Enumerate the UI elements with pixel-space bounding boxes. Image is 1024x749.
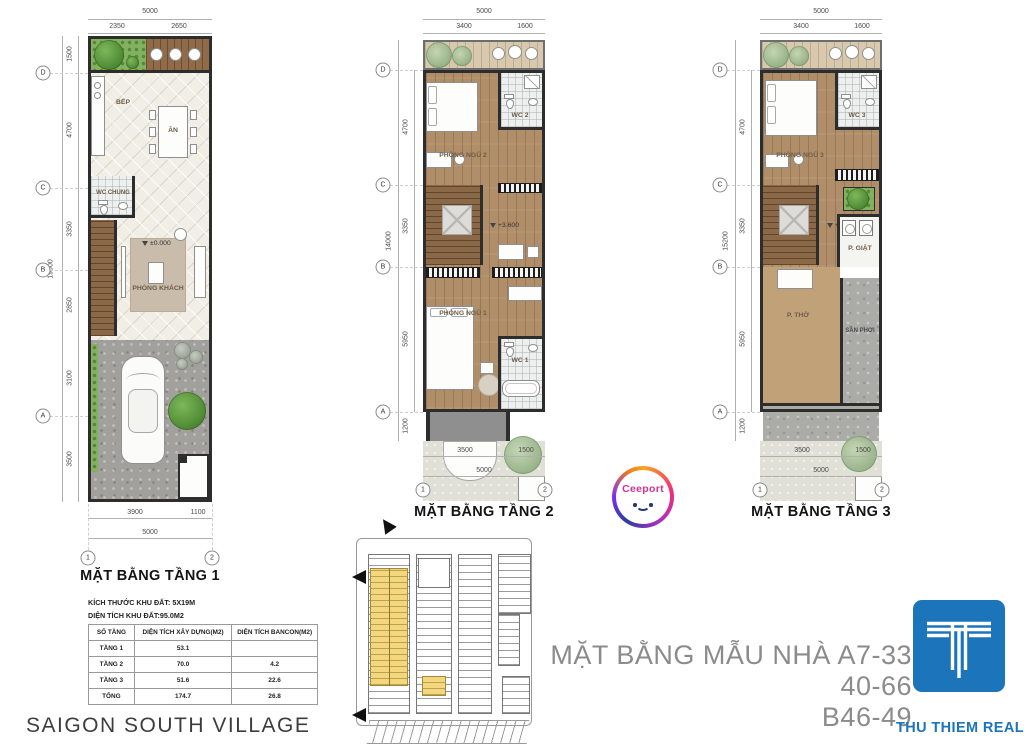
dim-label: 5000 bbox=[476, 8, 492, 15]
grid-bubble: B bbox=[36, 263, 51, 278]
land-area-text: DIỆN TÍCH KHU ĐẤT:95.0M2 bbox=[88, 611, 320, 620]
grid-bubble: 1 bbox=[753, 483, 768, 498]
floor3-title: MẶT BẰNG TẦNG 3 bbox=[751, 504, 891, 520]
planter-icon bbox=[508, 45, 522, 59]
dim-label: 3500 bbox=[794, 447, 810, 454]
dimension-line bbox=[735, 40, 736, 441]
round-rug bbox=[478, 374, 500, 396]
grid-line bbox=[390, 412, 423, 413]
grid-bubble: A bbox=[36, 409, 51, 424]
highlighted-lot bbox=[422, 676, 446, 696]
car-icon bbox=[121, 356, 165, 464]
deck-table-icon bbox=[169, 48, 182, 61]
dimension-line bbox=[414, 70, 415, 412]
dim-label: 5000 bbox=[813, 467, 829, 474]
railing bbox=[492, 267, 542, 278]
table-row: TỔNG 174.7 26.8 bbox=[89, 689, 318, 705]
t-logo-icon bbox=[913, 600, 1005, 692]
grid-line bbox=[727, 412, 760, 413]
grid-line bbox=[50, 73, 88, 74]
toilet-icon bbox=[98, 200, 108, 205]
skylight bbox=[442, 205, 472, 235]
deck-chair-icon bbox=[150, 48, 163, 61]
grid-bubble: 2 bbox=[875, 483, 890, 498]
level-marker-icon bbox=[490, 223, 496, 228]
dim-label: 1200 bbox=[403, 418, 410, 434]
wall bbox=[426, 412, 430, 441]
ceeport-label: Ceeport bbox=[616, 483, 670, 495]
dim-label: 1600 bbox=[854, 23, 870, 30]
dim-label: 15200 bbox=[723, 231, 730, 250]
tv-console-icon bbox=[121, 246, 126, 298]
dim-label: 3900 bbox=[127, 509, 143, 516]
site-block bbox=[458, 554, 492, 714]
project-name: SAIGON SOUTH VILLAGE bbox=[26, 714, 310, 738]
table-header: SỐ TẦNG bbox=[89, 625, 135, 641]
entrance-arrow-icon bbox=[352, 708, 366, 722]
shower-icon bbox=[861, 75, 877, 89]
dim-label: 2650 bbox=[171, 23, 187, 30]
dim-label: 3350 bbox=[403, 218, 410, 234]
dim-label: 1500 bbox=[67, 46, 74, 62]
table-row: TẦNG 3 51.6 22.6 bbox=[89, 673, 318, 689]
table-cell: 174.7 bbox=[134, 689, 232, 705]
grid-bubble: D bbox=[36, 66, 51, 81]
grid-bubble: 1 bbox=[81, 551, 96, 566]
grid-line bbox=[50, 188, 88, 189]
grid-bubble: B bbox=[713, 260, 728, 275]
dim-label: 5950 bbox=[740, 331, 747, 347]
dim-label: 3400 bbox=[456, 23, 472, 30]
room-label-worship: P. THỜ bbox=[787, 313, 809, 320]
floor1-plan: 5000 2350 2650 1500 4700 3350 2850 3100 … bbox=[18, 6, 268, 606]
dim-label: 3500 bbox=[457, 447, 473, 454]
land-size-text: KÍCH THƯỚC KHU ĐẤT: 5X19M bbox=[88, 598, 320, 607]
tree-icon bbox=[504, 436, 542, 474]
dim-label: 3350 bbox=[67, 221, 74, 237]
table-cell: 51.6 bbox=[134, 673, 232, 689]
dimension-line bbox=[423, 33, 545, 34]
dimension-line bbox=[78, 36, 79, 502]
table-cell: TẦNG 2 bbox=[89, 657, 135, 673]
table-cell: 70.0 bbox=[134, 657, 232, 673]
room-label-drying-yard: SÂN PHƠI bbox=[845, 328, 874, 334]
dim-label: 3500 bbox=[67, 451, 74, 467]
dimension-line bbox=[751, 70, 752, 412]
tree-icon bbox=[452, 46, 472, 66]
grid-bubble: 1 bbox=[416, 483, 431, 498]
brand-name: THU THIEM REAL bbox=[895, 720, 1024, 736]
shrub-icon bbox=[176, 358, 188, 370]
desk-icon bbox=[498, 244, 524, 260]
washer-icon bbox=[859, 220, 873, 236]
ceeport-watermark: Ceeport bbox=[612, 466, 674, 528]
kitchen-sink-icon bbox=[94, 82, 101, 89]
site-plan bbox=[352, 518, 537, 748]
dim-label: 1500 bbox=[518, 447, 534, 454]
level-marker: +3.600 bbox=[490, 222, 519, 229]
dim-label: 3100 bbox=[67, 370, 74, 386]
ceeport-face-icon: Ceeport bbox=[616, 470, 670, 524]
tree-icon bbox=[426, 42, 452, 68]
planter-icon bbox=[862, 47, 875, 60]
car-windshield bbox=[126, 373, 160, 387]
dim-label: 1500 bbox=[855, 447, 871, 454]
stove-icon bbox=[94, 92, 101, 99]
grid-line bbox=[88, 504, 89, 550]
table-header: DIỆN TÍCH BANCON(M2) bbox=[232, 625, 318, 641]
grid-bubble: D bbox=[713, 63, 728, 78]
dimension-line bbox=[423, 456, 545, 457]
ceeport-smile-icon bbox=[636, 500, 650, 511]
dim-label: 4700 bbox=[740, 119, 747, 135]
tree-icon bbox=[763, 42, 789, 68]
sink-icon bbox=[528, 344, 538, 352]
sink-icon bbox=[865, 98, 875, 106]
dim-label: 4700 bbox=[403, 119, 410, 135]
shrub-icon bbox=[126, 56, 139, 69]
sink-icon bbox=[118, 202, 128, 210]
dim-label: 5000 bbox=[813, 8, 829, 15]
dim-label: 3400 bbox=[793, 23, 809, 30]
room-label-living: PHÒNG KHÁCH bbox=[132, 286, 183, 293]
dim-label: 1600 bbox=[517, 23, 533, 30]
room-label-wc3: WC 3 bbox=[849, 113, 866, 120]
armchair-icon bbox=[174, 228, 187, 241]
grid-bubble: C bbox=[713, 178, 728, 193]
shrub-icon bbox=[189, 350, 203, 364]
site-block bbox=[498, 614, 520, 666]
thu-thiem-logo bbox=[913, 600, 1005, 692]
room-label-kitchen: BẾP bbox=[116, 100, 130, 107]
dim-label: 1200 bbox=[740, 418, 747, 434]
land-info: KÍCH THƯỚC KHU ĐẤT: 5X19M DIỆN TÍCH KHU … bbox=[88, 598, 320, 705]
room-label-bedroom3: PHÒNG NGỦ 3 bbox=[776, 153, 824, 160]
dim-label: 5000 bbox=[142, 529, 158, 536]
grid-line bbox=[50, 416, 88, 417]
dim-label: 2850 bbox=[67, 297, 74, 313]
floorplan-sheet: 5000 2350 2650 1500 4700 3350 2850 3100 … bbox=[0, 0, 1024, 749]
grid-line bbox=[390, 70, 423, 71]
dimension-line bbox=[760, 33, 882, 34]
dim-label: 2350 bbox=[109, 23, 125, 30]
grid-line bbox=[727, 185, 760, 186]
table-cell: 53.1 bbox=[134, 641, 232, 657]
dining-chair-icon bbox=[149, 127, 156, 137]
altar-table-icon bbox=[777, 269, 813, 289]
grid-bubble: A bbox=[376, 405, 391, 420]
dim-label: 5000 bbox=[476, 467, 492, 474]
caption-line2: B46-49 bbox=[537, 702, 912, 733]
bathtub-icon bbox=[502, 380, 540, 397]
tree-icon bbox=[168, 392, 206, 430]
tree-icon bbox=[789, 46, 809, 66]
grid-bubble: 2 bbox=[205, 551, 220, 566]
room-label-bedroom1: PHÒNG NGỦ 1 bbox=[439, 311, 487, 318]
pillow-icon bbox=[767, 106, 776, 124]
room-label-wc: WC CHUNG bbox=[96, 190, 130, 196]
tree-icon bbox=[841, 436, 877, 472]
staircase bbox=[91, 220, 117, 336]
railing bbox=[498, 183, 542, 193]
grid-line bbox=[50, 270, 88, 271]
tree-icon bbox=[94, 40, 124, 70]
table-row: TẦNG 1 53.1 bbox=[89, 641, 318, 657]
grid-bubble: C bbox=[376, 178, 391, 193]
planter-icon bbox=[525, 47, 538, 60]
floor3-plan: 5000 3400 1600 4700 3350 5950 1200 15200… bbox=[693, 6, 933, 606]
entrance-arrow-icon bbox=[352, 570, 366, 584]
dimension-line bbox=[88, 33, 212, 34]
grid-line bbox=[390, 185, 423, 186]
north-arrow-icon bbox=[377, 515, 396, 534]
chair-icon bbox=[480, 362, 494, 374]
dimension-line bbox=[423, 476, 545, 477]
planter-icon bbox=[845, 45, 859, 59]
dimension-line bbox=[760, 19, 882, 20]
dimension-line bbox=[423, 19, 545, 20]
level-value: +3.600 bbox=[498, 222, 519, 229]
dim-label: 5950 bbox=[403, 331, 410, 347]
grid-line bbox=[727, 267, 760, 268]
floor1-title: MẶT BẰNG TẦNG 1 bbox=[80, 568, 220, 584]
railing bbox=[426, 267, 480, 278]
dim-label: 1100 bbox=[190, 509, 205, 516]
area-table: SỐ TẦNG DIỆN TÍCH XÂY DỰNG(M2) DIỆN TÍCH… bbox=[88, 624, 318, 705]
site-block bbox=[502, 676, 530, 714]
lot-divider bbox=[389, 568, 390, 686]
toilet-icon bbox=[841, 94, 851, 99]
level-value: ±0.000 bbox=[150, 240, 171, 247]
table-cell: 22.6 bbox=[232, 673, 318, 689]
grid-bubble: C bbox=[36, 181, 51, 196]
skylight bbox=[779, 205, 809, 235]
car-roof bbox=[128, 389, 158, 433]
grid-bubble: B bbox=[376, 260, 391, 275]
planter-icon bbox=[829, 47, 842, 60]
room-label-bedroom2: PHÒNG NGỦ 2 bbox=[439, 153, 487, 160]
level-marker: ±0.000 bbox=[142, 240, 171, 247]
table-cell: 26.8 bbox=[232, 689, 318, 705]
planter-icon bbox=[492, 47, 505, 60]
sheet-caption: MẶT BẰNG MẪU NHÀ A7-33 40-66 B46-49 bbox=[537, 640, 912, 733]
front-balcony-slab bbox=[426, 412, 510, 441]
grid-line bbox=[212, 504, 213, 550]
grid-bubble: 2 bbox=[538, 483, 553, 498]
dimension-line bbox=[88, 518, 212, 519]
toilet-icon bbox=[504, 342, 514, 347]
room-label-laundry: P. GIẶT bbox=[848, 246, 872, 253]
table-cell bbox=[232, 641, 318, 657]
dining-chair-icon bbox=[190, 127, 197, 137]
dimension-line bbox=[62, 36, 63, 502]
dim-label: 3350 bbox=[740, 218, 747, 234]
room-label-wc1: WC 1 bbox=[512, 358, 529, 365]
wall bbox=[180, 456, 187, 463]
caption-line1: MẶT BẰNG MẪU NHÀ A7-33 40-66 bbox=[537, 640, 912, 702]
dimension-line bbox=[760, 476, 882, 477]
site-block bbox=[498, 554, 531, 614]
floor2-plan: 5000 3400 1600 4700 3350 5950 1200 14000… bbox=[358, 6, 593, 606]
site-lower-lots bbox=[367, 720, 530, 744]
hedge bbox=[91, 344, 98, 472]
grid-line bbox=[727, 70, 760, 71]
dim-label: 4700 bbox=[67, 122, 74, 138]
washer-icon bbox=[842, 220, 856, 236]
table-cell: TẦNG 3 bbox=[89, 673, 135, 689]
chair-icon bbox=[527, 246, 539, 258]
table-cell: 4.2 bbox=[232, 657, 318, 673]
pillow-icon bbox=[428, 86, 437, 104]
table-cell: TẦNG 1 bbox=[89, 641, 135, 657]
pillow-icon bbox=[428, 108, 437, 126]
grid-line bbox=[390, 267, 423, 268]
bed-icon bbox=[426, 306, 474, 390]
dim-label: 5000 bbox=[142, 8, 158, 15]
dining-chair-icon bbox=[190, 110, 197, 120]
room-label-wc2: WC 2 bbox=[512, 113, 529, 120]
drying-yard bbox=[840, 278, 879, 409]
table-header: DIỆN TÍCH XÂY DỰNG(M2) bbox=[134, 625, 232, 641]
toilet-icon bbox=[504, 94, 514, 99]
deck-chair-icon bbox=[188, 48, 201, 61]
shower-icon bbox=[524, 75, 540, 89]
wardrobe-icon bbox=[508, 286, 542, 301]
dimension-line bbox=[760, 456, 882, 457]
wc-room bbox=[91, 176, 135, 218]
dining-chair-icon bbox=[190, 144, 197, 154]
pillow-icon bbox=[767, 84, 776, 102]
railing bbox=[835, 169, 879, 181]
dimension-line bbox=[398, 40, 399, 441]
tree-icon bbox=[847, 188, 869, 210]
dining-chair-icon bbox=[149, 110, 156, 120]
dim-label: 14000 bbox=[386, 231, 393, 250]
wall bbox=[506, 412, 510, 441]
drying-yard bbox=[763, 403, 879, 409]
dimension-line bbox=[88, 19, 212, 20]
level-marker-icon bbox=[142, 241, 148, 246]
table-row: TẦNG 2 70.0 4.2 bbox=[89, 657, 318, 673]
level-marker-icon bbox=[827, 223, 833, 228]
site-open-lot bbox=[418, 558, 450, 588]
sink-icon bbox=[528, 98, 538, 106]
grid-bubble: D bbox=[376, 63, 391, 78]
grid-bubble: A bbox=[713, 405, 728, 420]
sofa-icon bbox=[194, 246, 206, 298]
coffee-table-icon bbox=[148, 262, 164, 284]
dining-chair-icon bbox=[149, 144, 156, 154]
dimension-line bbox=[88, 538, 212, 539]
table-cell: TỔNG bbox=[89, 689, 135, 705]
room-label-dining: ĂN bbox=[168, 128, 178, 135]
